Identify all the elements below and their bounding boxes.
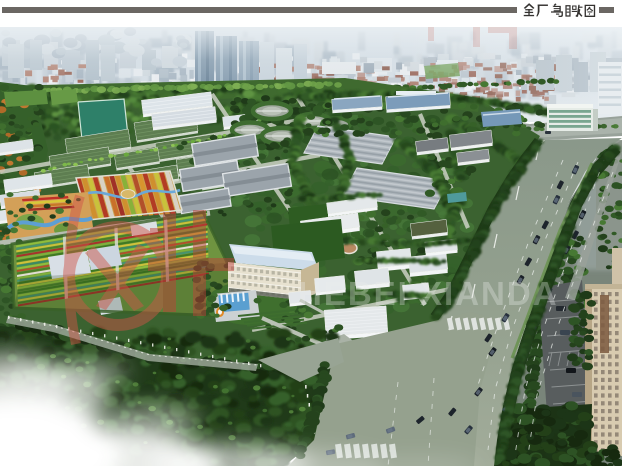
svg-text:HEBEI XIANDA: HEBEI XIANDA: [298, 275, 559, 312]
